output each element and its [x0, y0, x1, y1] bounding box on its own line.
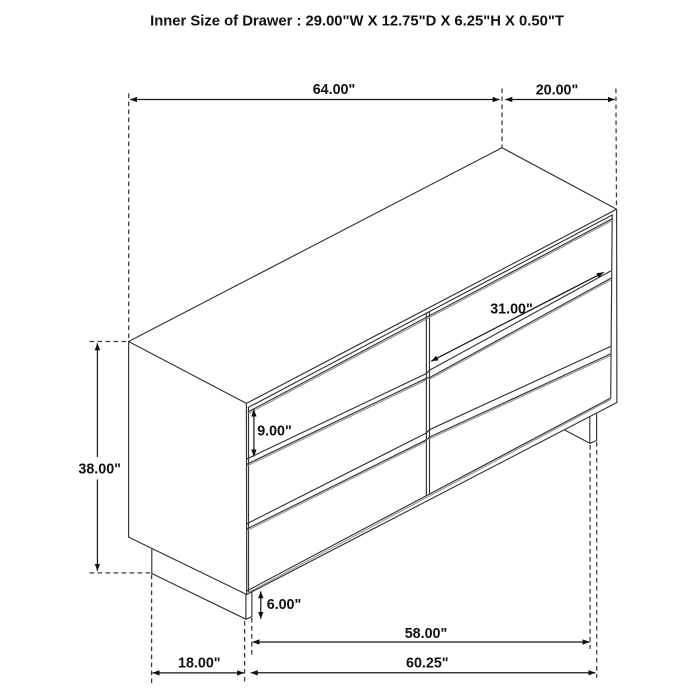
svg-text:9.00": 9.00" — [257, 424, 292, 440]
svg-text:38.00": 38.00" — [78, 462, 121, 478]
svg-text:20.00": 20.00" — [536, 82, 579, 98]
svg-text:Inner Size of Drawer : 29.00"W: Inner Size of Drawer : 29.00"W X 12.75"D… — [150, 14, 564, 30]
svg-text:64.00": 64.00" — [313, 82, 356, 98]
svg-text:18.00": 18.00" — [178, 656, 221, 672]
svg-text:60.25": 60.25" — [406, 655, 449, 671]
svg-text:31.00": 31.00" — [490, 302, 533, 318]
svg-text:6.00": 6.00" — [267, 597, 302, 613]
svg-text:58.00": 58.00" — [405, 626, 448, 642]
